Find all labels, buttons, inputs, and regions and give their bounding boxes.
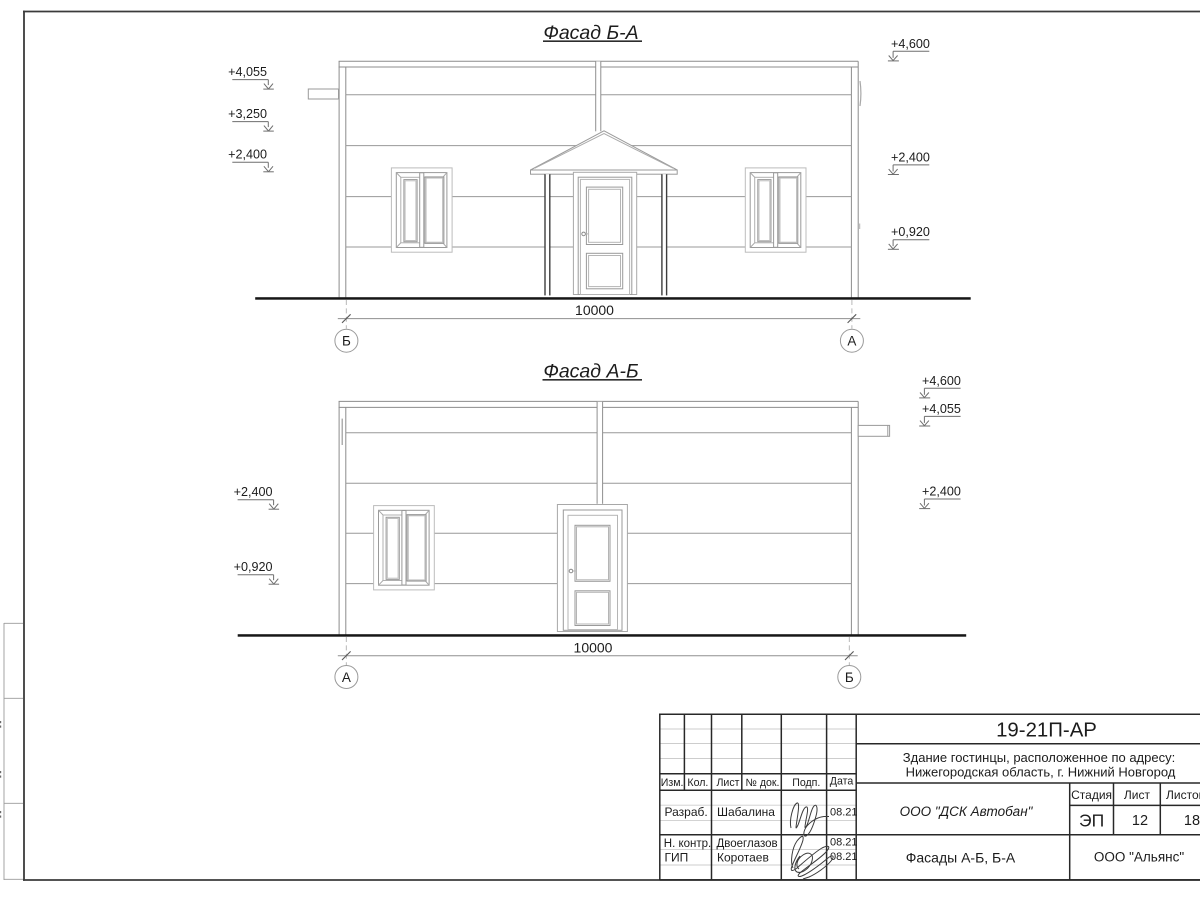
svg-text:Лист: Лист (1124, 788, 1151, 802)
svg-text:10000: 10000 (575, 302, 614, 318)
svg-text:Коротаев: Коротаев (717, 851, 769, 865)
svg-text:+2,400: +2,400 (922, 485, 961, 499)
svg-text:+4,055: +4,055 (922, 402, 961, 416)
svg-text:18: 18 (1184, 813, 1200, 829)
svg-text:+4,600: +4,600 (891, 37, 930, 51)
svg-text:08.21: 08.21 (830, 851, 858, 863)
svg-text:08.21: 08.21 (830, 836, 858, 848)
svg-text:№ док.: № док. (746, 777, 780, 789)
svg-text:Изм.: Изм. (661, 777, 684, 789)
svg-text:Лист: Лист (716, 777, 739, 789)
svg-text:19-21П-АР: 19-21П-АР (996, 720, 1097, 742)
svg-text:А: А (342, 670, 351, 685)
svg-text:12: 12 (1132, 813, 1148, 829)
svg-text:+2,400: +2,400 (234, 485, 273, 499)
svg-text:08.21: 08.21 (830, 807, 858, 819)
svg-text:Шабалина: Шабалина (717, 805, 775, 819)
svg-text:+0,920: +0,920 (234, 560, 273, 574)
svg-text:Подп.: Подп. (792, 777, 820, 789)
svg-text:10000: 10000 (574, 639, 613, 655)
svg-text:ООО "ДСК Автобан": ООО "ДСК Автобан" (900, 804, 1034, 819)
svg-text:Листов: Листов (1166, 788, 1200, 802)
svg-text:Разраб.: Разраб. (665, 805, 708, 819)
svg-text:Б: Б (845, 670, 854, 685)
svg-text:Здание гостинцы, расположенное: Здание гостинцы, расположенное по адресу… (903, 750, 1175, 765)
svg-text:Б: Б (342, 334, 351, 349)
svg-text:+2,400: +2,400 (891, 150, 930, 164)
svg-text:ГИП: ГИП (665, 851, 689, 865)
svg-text:А: А (847, 334, 856, 349)
svg-text:ЭП: ЭП (1079, 811, 1104, 831)
svg-text:ООО "Альянс": ООО "Альянс" (1094, 849, 1184, 864)
svg-text:Н. контр.: Н. контр. (664, 838, 711, 850)
svg-text:Кол.: Кол. (687, 777, 708, 789)
svg-text:+3,250: +3,250 (228, 107, 267, 121)
svg-text:+0,920: +0,920 (891, 225, 930, 239)
svg-text:Двоеглазов: Двоеглазов (717, 838, 778, 850)
svg-text:+4,600: +4,600 (922, 374, 961, 388)
svg-text:+4,055: +4,055 (228, 65, 267, 79)
svg-text:Фасады А-Б, Б-А: Фасады А-Б, Б-А (906, 850, 1016, 866)
svg-text:Нижегородская область, г. Нижн: Нижегородская область, г. Нижний Новгоро… (906, 765, 1176, 780)
svg-text:Дата: Дата (830, 776, 854, 788)
svg-text:+2,400: +2,400 (228, 148, 267, 162)
svg-text:Стадия: Стадия (1071, 788, 1112, 802)
